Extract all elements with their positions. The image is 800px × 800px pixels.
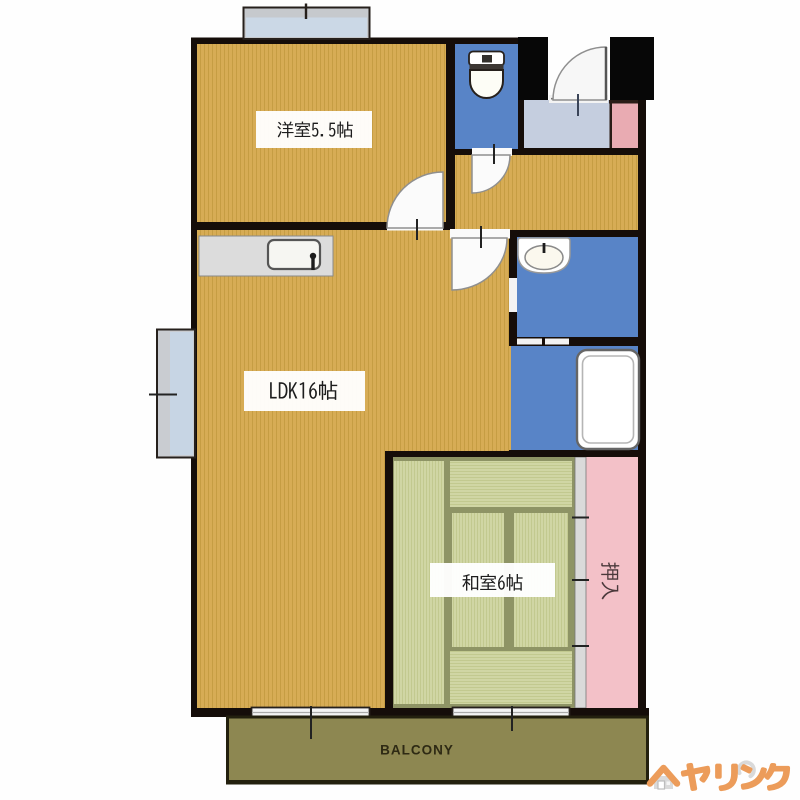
svg-text:BALCONY: BALCONY <box>380 743 454 758</box>
